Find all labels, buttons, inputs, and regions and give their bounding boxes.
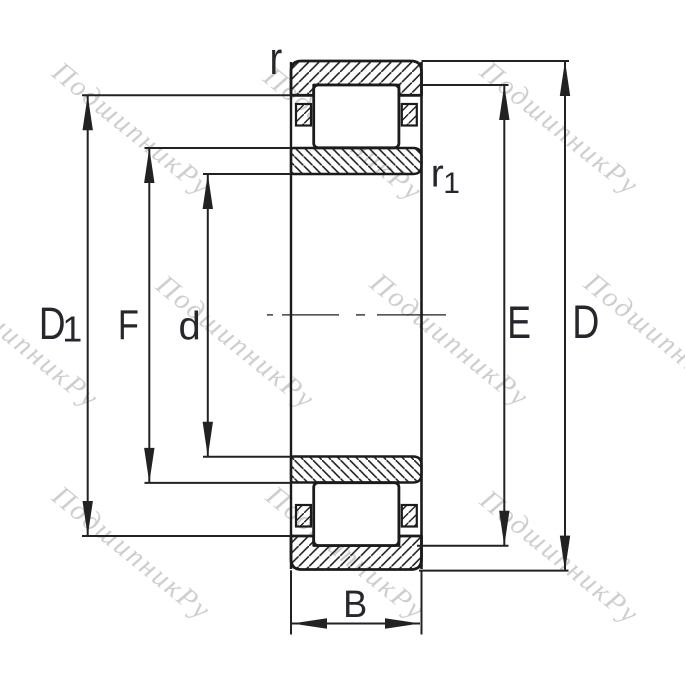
svg-text:r: r — [270, 33, 283, 84]
svg-text:B: B — [343, 582, 367, 625]
svg-text:D: D — [572, 296, 599, 349]
svg-text:F: F — [118, 302, 139, 349]
svg-text:d: d — [179, 305, 201, 349]
svg-text:1: 1 — [443, 167, 460, 200]
svg-text:E: E — [507, 297, 531, 348]
svg-text:1: 1 — [62, 308, 82, 349]
svg-text:r: r — [431, 153, 444, 196]
